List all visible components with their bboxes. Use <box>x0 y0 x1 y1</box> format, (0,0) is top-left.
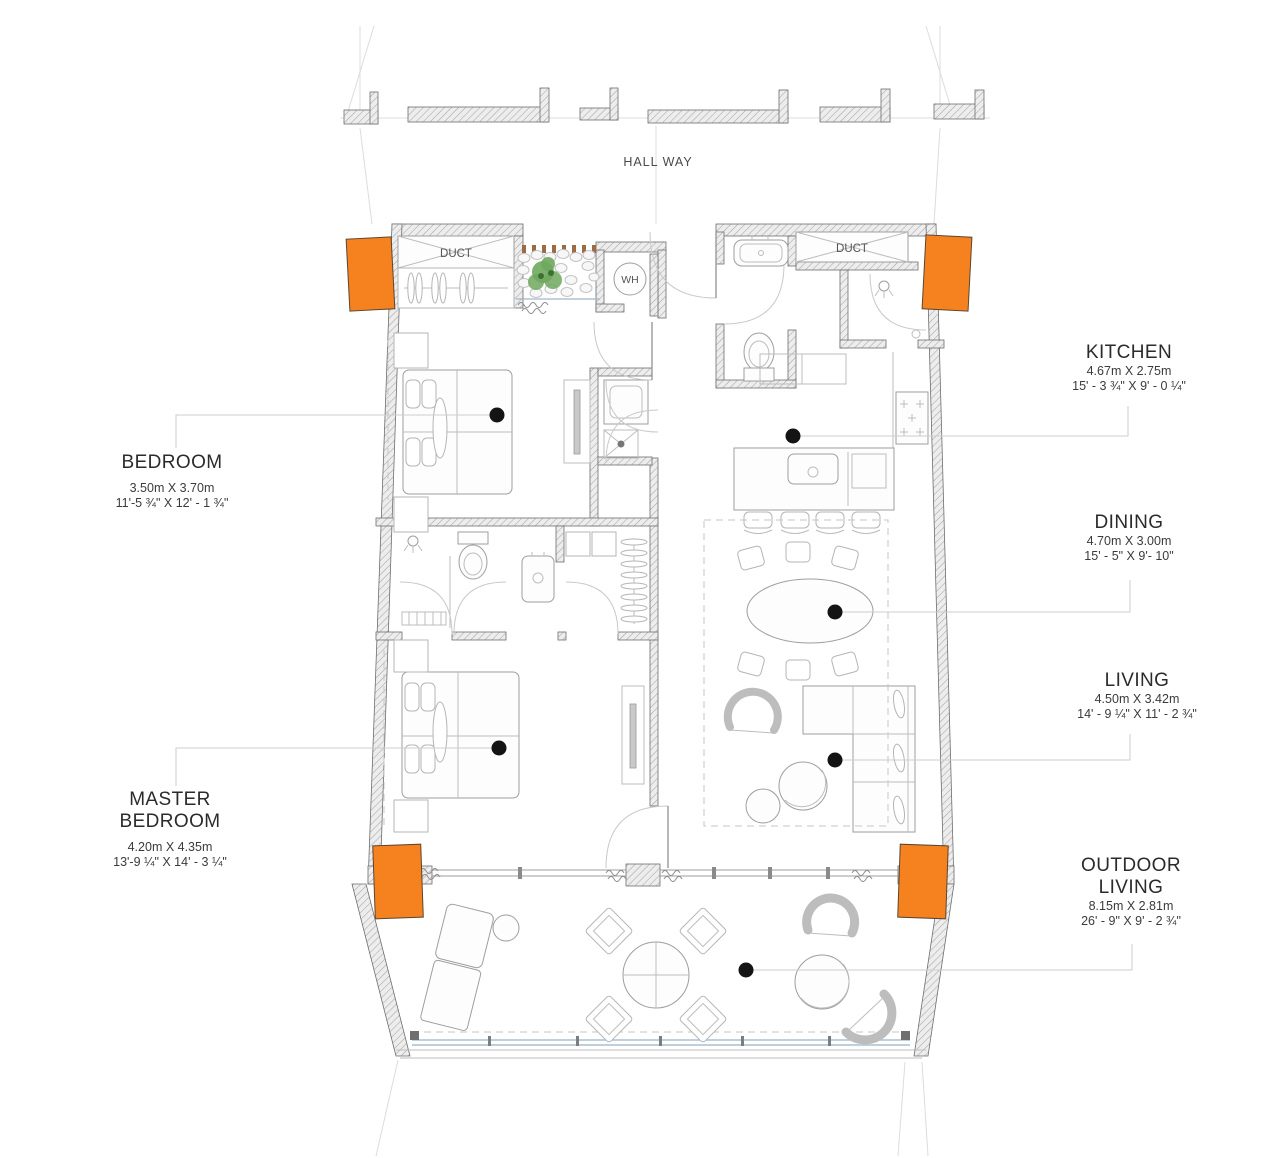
living-title: LIVING <box>1048 670 1226 692</box>
duct-left-label: DUCT <box>440 248 472 260</box>
living-furniture <box>728 686 915 832</box>
outdoor-dining-set <box>585 907 727 1043</box>
living-imperial: 14' - 9 ¼" X 11' - 2 ¾" <box>1048 707 1226 722</box>
water-heater-room: WH <box>614 263 646 295</box>
bedroom-metric: 3.50m X 3.70m <box>88 481 256 496</box>
plant <box>528 257 562 290</box>
floor-plan-page: DUCT <box>0 0 1272 1158</box>
kitchen-metric: 4.67m X 2.75m <box>1040 364 1218 379</box>
outdoor-furniture <box>419 898 892 1043</box>
bedroom-imperial: 11'-5 ¾" X 12' - 1 ¾" <box>88 496 256 511</box>
closet-hangers-left <box>398 268 514 308</box>
floor-plan-canvas: DUCT <box>0 0 1272 1158</box>
corridor-walls <box>344 88 984 124</box>
master-bedroom-furniture <box>384 640 644 832</box>
hallway-label: HALL WAY <box>596 155 720 169</box>
dining-title: DINING <box>1040 512 1218 534</box>
master-bedroom-metric: 4.20m X 4.35m <box>86 840 254 855</box>
master-tv <box>622 686 644 784</box>
outdoor-living-title-line2: LIVING <box>1042 877 1220 899</box>
master-bedroom-imperial: 13'-9 ¼" X 14' - 3 ¼" <box>86 855 254 870</box>
column-top-right <box>922 235 972 311</box>
bar-stools <box>744 512 880 534</box>
outdoor-living-metric: 8.15m X 2.81m <box>1042 899 1220 914</box>
label-kitchen: KITCHEN 4.67m X 2.75m 15' - 3 ¾" X 9' - … <box>1040 342 1218 394</box>
duct-right-label: DUCT <box>836 243 868 255</box>
label-dining: DINING 4.70m X 3.00m 15' - 5" X 9'- 10" <box>1040 512 1218 564</box>
dining-metric: 4.70m X 3.00m <box>1040 534 1218 549</box>
curved-chair-top <box>807 898 855 936</box>
lounge-chair <box>419 903 496 1031</box>
walkin-closet <box>566 532 647 624</box>
wc-bathroom <box>734 236 788 381</box>
bedroom-furniture <box>388 333 590 532</box>
master-bathroom-fixtures <box>402 532 554 628</box>
curved-chair-bottom <box>846 994 892 1040</box>
master-bedroom-title-line2: BEDROOM <box>86 811 254 833</box>
label-master-bedroom: MASTER BEDROOM 4.20m X 4.35m 13'-9 ¼" X … <box>86 789 254 870</box>
laundry-closet <box>604 380 648 458</box>
armchair <box>728 692 778 733</box>
water-heater-label: WH <box>621 274 639 286</box>
outdoor-living-title-line1: OUTDOOR <box>1042 855 1220 877</box>
duct-left: DUCT <box>398 236 514 268</box>
dining-furniture <box>737 542 873 680</box>
label-bedroom: BEDROOM 3.50m X 3.70m 11'-5 ¾" X 12' - 1… <box>88 452 256 511</box>
label-living: LIVING 4.50m X 3.42m 14' - 9 ¼" X 11' - … <box>1048 670 1226 722</box>
master-bedroom-title-line1: MASTER <box>86 789 254 811</box>
kitchen-imperial: 15' - 3 ¾" X 9' - 0 ¼" <box>1040 379 1218 394</box>
kitchen-island <box>734 448 894 510</box>
entry-garden <box>516 245 600 314</box>
living-metric: 4.50m X 3.42m <box>1048 692 1226 707</box>
bedroom-tv <box>564 380 590 463</box>
column-bottom-right <box>898 844 949 919</box>
duct-right: DUCT <box>796 232 908 262</box>
bedroom-title: BEDROOM <box>88 452 256 474</box>
label-outdoor-living: OUTDOOR LIVING 8.15m X 2.81m 26' - 9" X … <box>1042 855 1220 929</box>
dining-imperial: 15' - 5" X 9'- 10" <box>1040 549 1218 564</box>
outdoor-living-imperial: 26' - 9" X 9' - 2 ¾" <box>1042 914 1220 929</box>
column-bottom-left <box>373 844 424 919</box>
kitchen-title: KITCHEN <box>1040 342 1218 364</box>
column-top-left <box>346 237 395 311</box>
